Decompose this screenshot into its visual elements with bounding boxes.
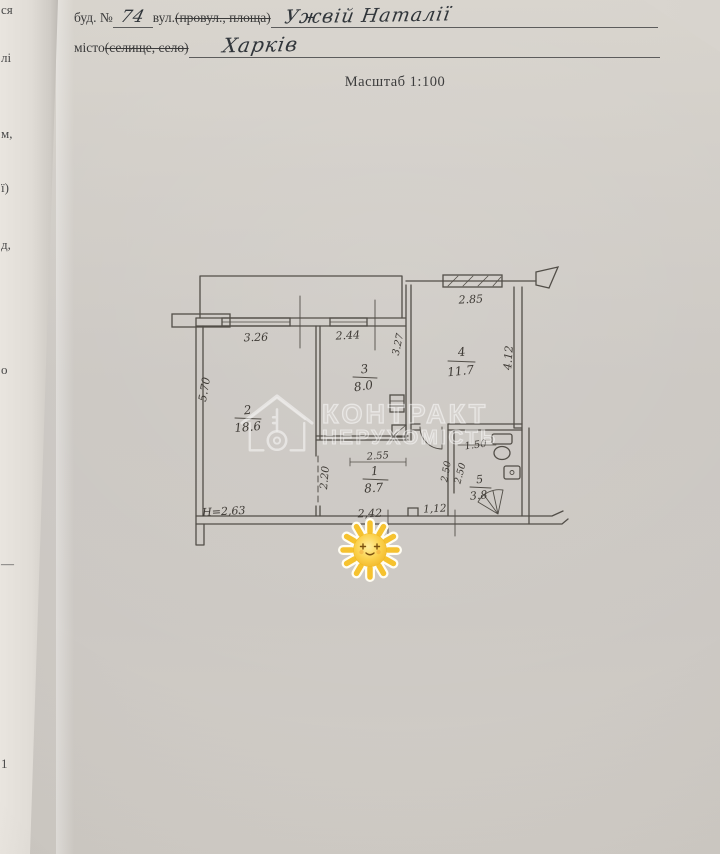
toilet-bowl xyxy=(494,447,510,460)
door-arc-room4 xyxy=(420,427,442,449)
room1-area: 8.7 xyxy=(364,480,384,495)
sun-cheek-right xyxy=(376,550,380,554)
bottom-wall-notch xyxy=(408,508,418,516)
city-field: Харків xyxy=(189,33,660,58)
text-fragment: ся xyxy=(1,2,13,18)
text-fragment: о xyxy=(1,362,8,378)
room1-fraction-line xyxy=(363,479,388,480)
text-fragment: лі xyxy=(1,50,11,66)
balcony-right-end xyxy=(536,267,558,288)
street-label: вул. xyxy=(153,10,175,28)
room5-area: 3.8 xyxy=(469,488,488,503)
text-fragment: д, xyxy=(1,237,11,253)
vent-shaft-upper xyxy=(390,395,404,412)
room3-number: 3 xyxy=(360,362,370,377)
wall-room3-room4 xyxy=(406,285,411,440)
vent-shaft-lower-diag xyxy=(392,425,406,437)
dim-window-mid: 2.44 xyxy=(334,328,360,342)
text-fragment: — xyxy=(1,556,14,572)
sun-body xyxy=(354,534,387,567)
room2-area: 18.6 xyxy=(234,419,262,435)
room2-number: 2 xyxy=(242,403,252,418)
dim-wc-depth: 2.50 xyxy=(439,460,454,484)
dim-room2-depth: 5.70 xyxy=(196,376,213,402)
toilet-cistern xyxy=(492,434,512,444)
city-value: Харків xyxy=(187,32,300,58)
text-fragment: м, xyxy=(1,126,12,142)
room4-area: 11.7 xyxy=(447,363,475,380)
paper-crease xyxy=(56,0,82,854)
photo-of-document: ся лі м, ї) д, о — 1 буд. № 74 вул. (про… xyxy=(0,0,720,854)
vent-shaft-upper-lines xyxy=(390,401,404,406)
form-line-city: місто (селище, село) Харків xyxy=(74,33,660,58)
city-label: місто xyxy=(74,40,105,58)
dim-bottom-right: 1,12 xyxy=(423,502,447,515)
balcony-end-cap xyxy=(172,314,230,327)
dim-balcony: 2.85 xyxy=(457,292,483,306)
street-value: Ужвій Наталії xyxy=(269,3,452,28)
street-field: Ужвій Наталії xyxy=(271,5,658,28)
dim-hall-top: 2.55 xyxy=(365,450,389,463)
room1-number: 1 xyxy=(370,464,379,478)
building-number-value: 74 xyxy=(118,7,147,27)
scale-label: Масштаб 1:100 xyxy=(70,74,720,91)
sink-drain xyxy=(510,471,514,475)
room3-area: 8.0 xyxy=(353,378,374,395)
sun-cheek-left xyxy=(359,550,363,554)
text-fragment: 1 xyxy=(1,756,8,772)
wall-room4-bathroom xyxy=(411,424,522,430)
room5-number: 5 xyxy=(475,473,483,487)
street-label-struck: (провул., площа) xyxy=(175,10,271,28)
dim-hall-left: 2.20 xyxy=(318,465,332,491)
room4-fraction-line xyxy=(448,361,475,362)
form-line-building: буд. № 74 вул. (провул., площа) Ужвій На… xyxy=(74,5,658,28)
text-fragment: ї) xyxy=(1,180,9,196)
sink xyxy=(504,466,520,479)
floor-plan-drawing: 3.26 2.44 2.85 3.27 4.12 5.70 2.55 2.20 … xyxy=(158,248,570,598)
balcony-left-outline xyxy=(200,276,402,318)
right-wall xyxy=(514,287,529,524)
dim-wc-width: 1.50 xyxy=(464,438,488,452)
document-page: буд. № 74 вул. (провул., площа) Ужвій На… xyxy=(0,0,720,854)
dim-room4-depth: 4.12 xyxy=(501,345,516,371)
building-number-field: 74 xyxy=(113,7,153,28)
dim-room3-depth: 3.27 xyxy=(391,332,407,357)
city-label-struck: (селище, село) xyxy=(105,40,189,58)
dim-ceiling-height: Н=2,63 xyxy=(201,504,246,519)
dim-window-left: 3.26 xyxy=(243,331,268,345)
dim-wc-depth2: 2.50 xyxy=(452,462,468,486)
room4-number: 4 xyxy=(456,345,466,360)
building-number-label: буд. № xyxy=(74,10,113,28)
sun-sticker xyxy=(343,523,397,577)
